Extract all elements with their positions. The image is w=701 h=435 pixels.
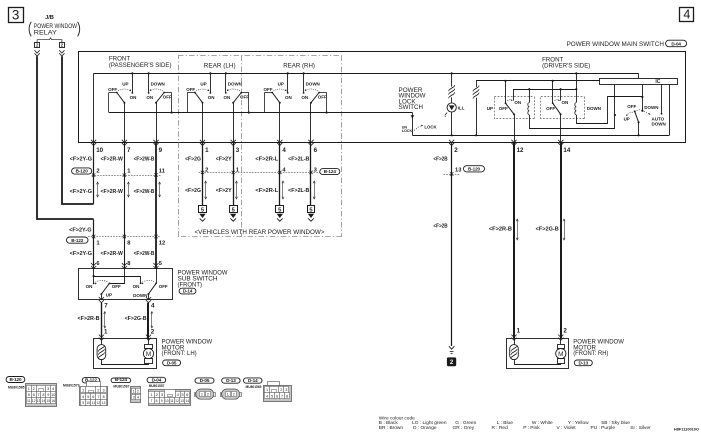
svg-text:GR : Grey: GR : Grey: [453, 425, 475, 431]
svg-text:2: 2: [97, 389, 99, 393]
svg-text:B-120: B-120: [9, 377, 22, 382]
svg-text:3: 3: [12, 8, 20, 23]
svg-text:8: 8: [286, 395, 288, 399]
svg-text:<F>2Y-G: <F>2Y-G: [70, 251, 92, 257]
svg-text:<F>2W-B: <F>2W-B: [134, 251, 155, 257]
svg-text:ON: ON: [562, 100, 569, 105]
svg-text:4: 4: [266, 395, 268, 399]
svg-text:(DRIVER'S SIDE): (DRIVER'S SIDE): [542, 63, 590, 70]
svg-text:13: 13: [37, 399, 41, 403]
svg-text:D-13: D-13: [226, 378, 236, 383]
svg-text:9: 9: [161, 399, 163, 403]
svg-text:3: 3: [285, 388, 287, 392]
svg-text:LOCK: LOCK: [424, 124, 437, 129]
svg-text:8: 8: [102, 395, 104, 399]
svg-text:<F>2R-W: <F>2R-W: [101, 251, 123, 257]
svg-text:OFF: OFF: [264, 87, 273, 92]
svg-text:<VEHICLES WITH REAR POWER WIND: <VEHICLES WITH REAR POWER WINDOW>: [195, 229, 325, 236]
svg-text:2: 2: [233, 393, 235, 397]
svg-text:1: 1: [205, 147, 209, 154]
svg-text:D-05: D-05: [200, 378, 210, 383]
svg-text:4: 4: [683, 8, 690, 22]
svg-text:ON: ON: [133, 284, 140, 289]
svg-text:8: 8: [42, 393, 44, 397]
svg-text:D-14: D-14: [248, 378, 258, 383]
svg-text:DOWN: DOWN: [228, 81, 242, 86]
svg-text:B-124: B-124: [115, 377, 128, 382]
svg-text:6: 6: [276, 395, 278, 399]
svg-text:7: 7: [151, 399, 153, 403]
svg-text:(FRONT: LH): (FRONT: LH): [162, 350, 197, 357]
svg-text:(FRONT: RH): (FRONT: RH): [573, 350, 608, 357]
svg-text:D-14: D-14: [183, 289, 193, 294]
svg-text:SI : Silver: SI : Silver: [630, 425, 651, 431]
svg-text:DOWN: DOWN: [644, 105, 658, 110]
svg-text:ON: ON: [301, 95, 308, 100]
svg-text:<F>2Y-G: <F>2Y-G: [70, 157, 92, 163]
svg-text:<F>2R-B: <F>2R-B: [78, 316, 100, 322]
svg-text:2: 2: [207, 393, 209, 397]
svg-text:REAR (LH): REAR (LH): [204, 63, 236, 70]
svg-text:<F>2Y: <F>2Y: [216, 157, 232, 163]
svg-text:3: 3: [161, 393, 163, 397]
svg-text:OFF: OFF: [112, 284, 121, 289]
svg-text:ON: ON: [514, 100, 521, 105]
svg-text:5: 5: [181, 393, 183, 397]
svg-text:LOCK: LOCK: [402, 129, 413, 133]
svg-text:5: 5: [271, 395, 273, 399]
svg-text:OFF: OFF: [627, 104, 636, 109]
svg-text:O : Orange: O : Orange: [413, 425, 437, 431]
svg-text:B-122: B-122: [71, 238, 84, 243]
svg-text:<F>2G-B: <F>2G-B: [125, 316, 147, 322]
svg-text:OFF: OFF: [546, 106, 555, 111]
svg-text:ILL: ILL: [458, 105, 465, 110]
svg-text:V : Violet: V : Violet: [557, 425, 577, 431]
svg-text:11: 11: [170, 399, 174, 403]
svg-text:1: 1: [201, 393, 203, 397]
svg-text:2: 2: [156, 393, 158, 397]
svg-text:4: 4: [52, 387, 54, 391]
svg-text:<F>2W-B: <F>2W-B: [134, 189, 155, 195]
svg-text:M: M: [146, 351, 151, 358]
svg-text:3: 3: [133, 396, 135, 400]
svg-text:13: 13: [180, 399, 184, 403]
svg-text:2: 2: [280, 388, 282, 392]
svg-text:ON: ON: [146, 95, 153, 100]
svg-text:12: 12: [159, 240, 165, 246]
svg-text:14: 14: [185, 399, 189, 403]
svg-text:7: 7: [127, 147, 131, 154]
svg-text:4: 4: [282, 147, 286, 154]
svg-text:D-05: D-05: [167, 360, 177, 365]
svg-text:D-04: D-04: [152, 377, 162, 382]
svg-text:DOWN: DOWN: [133, 293, 147, 298]
svg-text:OFF: OFF: [499, 106, 508, 111]
svg-text:4: 4: [151, 303, 155, 310]
svg-text:UP: UP: [278, 81, 284, 86]
svg-text:6: 6: [92, 395, 94, 399]
svg-text:ON: ON: [208, 95, 215, 100]
svg-text:POWER WINDOW MAIN SWITCH: POWER WINDOW MAIN SWITCH: [567, 41, 665, 48]
svg-text:<F>2R-W: <F>2R-W: [101, 189, 123, 195]
svg-text:5: 5: [28, 393, 30, 397]
svg-text:SWITCH: SWITCH: [399, 104, 424, 111]
svg-text:9: 9: [82, 401, 84, 405]
svg-text:15: 15: [46, 399, 50, 403]
svg-text:(PASSENGER'S SIDE): (PASSENGER'S SIDE): [109, 62, 172, 69]
svg-text:R : Red: R : Red: [492, 425, 509, 431]
svg-text:<F>2Y-G: <F>2Y-G: [70, 189, 92, 195]
svg-text:M: M: [558, 351, 563, 358]
svg-text:DOWN: DOWN: [151, 81, 165, 86]
svg-text:12: 12: [32, 399, 36, 403]
svg-text:4: 4: [177, 393, 179, 397]
svg-text:3: 3: [102, 389, 104, 393]
svg-text:7: 7: [37, 393, 39, 397]
svg-text:<F>2G: <F>2G: [185, 157, 201, 163]
svg-text:2: 2: [563, 328, 567, 335]
svg-text:UP: UP: [106, 293, 112, 298]
svg-text:3: 3: [47, 387, 49, 391]
svg-text:<F>2R-L: <F>2R-L: [255, 157, 279, 163]
svg-text:<F>2L-B: <F>2L-B: [288, 157, 309, 163]
svg-text:10: 10: [86, 401, 90, 405]
svg-text:<F>2B: <F>2B: [433, 157, 447, 163]
svg-text:D-04: D-04: [671, 41, 681, 46]
svg-text:2: 2: [96, 169, 99, 175]
svg-text:B-120: B-120: [76, 169, 89, 174]
svg-text:<F>2L-B: <F>2L-B: [288, 188, 309, 194]
svg-text:8: 8: [156, 399, 158, 403]
svg-text:1: 1: [517, 328, 521, 335]
svg-text:4: 4: [137, 396, 139, 400]
svg-text:6: 6: [186, 393, 188, 397]
svg-text:UP: UP: [122, 81, 128, 86]
svg-text:1: 1: [133, 390, 135, 394]
svg-text:2: 2: [33, 387, 35, 391]
svg-text:<F>2R-B: <F>2R-B: [489, 226, 512, 232]
svg-text:2: 2: [137, 390, 139, 394]
svg-text:7: 7: [281, 395, 283, 399]
svg-text:14: 14: [42, 399, 46, 403]
svg-text:ON: ON: [285, 95, 292, 100]
svg-text:10: 10: [96, 147, 103, 154]
svg-text:B-120: B-120: [468, 167, 481, 172]
svg-text:ON: ON: [224, 95, 231, 100]
svg-text:REAR (RH): REAR (RH): [283, 63, 315, 70]
svg-text:1: 1: [227, 393, 229, 397]
svg-text:2: 2: [454, 147, 458, 154]
svg-text:MU801587: MU801587: [113, 384, 129, 388]
svg-text:12: 12: [97, 401, 101, 405]
svg-text:MU801585: MU801585: [8, 385, 25, 389]
svg-text:1: 1: [104, 328, 108, 335]
svg-text:OFF: OFF: [163, 94, 172, 99]
svg-text:MU801569: MU801569: [246, 385, 262, 389]
svg-text:11: 11: [92, 401, 96, 405]
svg-text:<F>2G: <F>2G: [185, 188, 201, 194]
svg-text:9: 9: [47, 393, 49, 397]
svg-text:OFF: OFF: [318, 94, 327, 99]
svg-text:OFF: OFF: [186, 87, 195, 92]
svg-text:2: 2: [205, 168, 208, 174]
svg-text:DOWN: DOWN: [587, 106, 601, 111]
svg-text:<F>2Y: <F>2Y: [216, 188, 232, 194]
svg-text:1: 1: [28, 387, 30, 391]
svg-text:MU801557: MU801557: [149, 384, 165, 388]
svg-text:DOWN: DOWN: [652, 121, 666, 126]
svg-text:OFF: OFF: [159, 284, 168, 289]
svg-text:<F>2G-B: <F>2G-B: [536, 226, 559, 232]
svg-text:BR : Brown: BR : Brown: [379, 425, 404, 431]
svg-text:ON: ON: [86, 284, 93, 289]
svg-text:3: 3: [236, 147, 240, 154]
svg-text:ON: ON: [130, 95, 137, 100]
svg-text:B-124: B-124: [324, 169, 337, 174]
svg-text:7: 7: [104, 303, 108, 310]
svg-text:7: 7: [97, 395, 99, 399]
svg-text:13: 13: [455, 167, 462, 173]
svg-text:<F>2Y-G: <F>2Y-G: [69, 227, 91, 233]
svg-text:D-13: D-13: [579, 360, 589, 365]
svg-text:MU801579: MU801579: [63, 383, 80, 387]
svg-text:13: 13: [102, 401, 106, 405]
svg-text:14: 14: [563, 147, 570, 154]
svg-text:UP: UP: [624, 117, 630, 122]
svg-text:11: 11: [159, 169, 166, 175]
svg-text:OFF: OFF: [108, 87, 117, 92]
svg-text:12: 12: [175, 399, 179, 403]
svg-text:1: 1: [266, 388, 268, 392]
svg-text:PU : Purple: PU : Purple: [591, 425, 616, 431]
svg-text:10: 10: [51, 393, 55, 397]
svg-text:<F>2B: <F>2B: [433, 224, 447, 230]
svg-text:<F>2R-L: <F>2R-L: [255, 188, 279, 194]
svg-text:<F>2R-W: <F>2R-W: [101, 157, 123, 163]
svg-text:RELAY: RELAY: [34, 29, 57, 36]
svg-text:10: 10: [165, 399, 169, 403]
svg-text:<F>2W-B: <F>2W-B: [134, 157, 155, 163]
svg-text:2: 2: [151, 328, 155, 335]
svg-text:DOWN: DOWN: [306, 81, 320, 86]
svg-text:1: 1: [82, 389, 84, 393]
svg-text:UP: UP: [487, 106, 493, 111]
svg-text:16: 16: [51, 399, 55, 403]
svg-text:H8F1110010O: H8F1110010O: [674, 427, 699, 432]
svg-text:J/B: J/B: [45, 15, 54, 21]
svg-text:5: 5: [87, 395, 89, 399]
svg-text:1: 1: [150, 393, 152, 397]
svg-text:6: 6: [314, 147, 318, 154]
svg-text:IC: IC: [655, 79, 660, 85]
svg-text:UP: UP: [200, 81, 206, 86]
svg-text:P : Pink: P : Pink: [523, 425, 540, 431]
svg-text:4: 4: [82, 395, 84, 399]
svg-text:12: 12: [517, 147, 524, 154]
svg-text:OFF: OFF: [240, 94, 249, 99]
svg-text:11: 11: [27, 399, 31, 403]
svg-text:6: 6: [33, 393, 35, 397]
svg-text:9: 9: [159, 147, 163, 154]
